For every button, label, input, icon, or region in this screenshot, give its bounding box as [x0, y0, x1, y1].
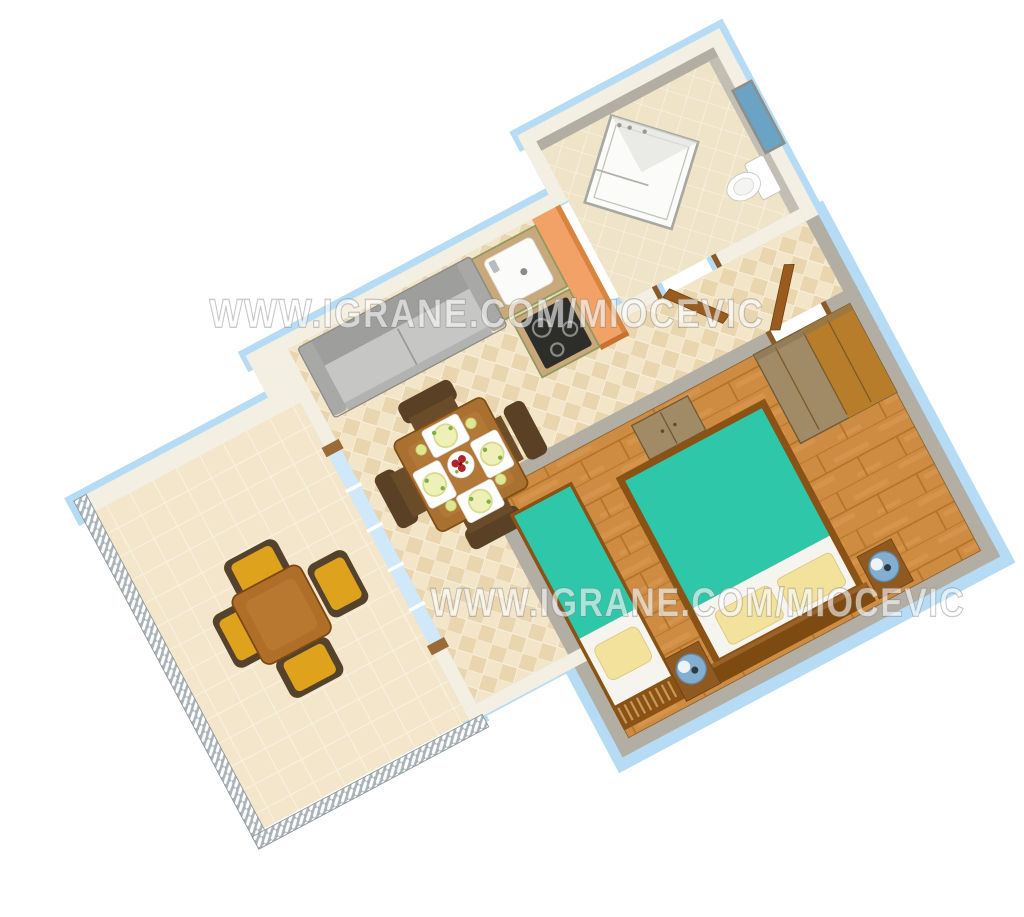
apartment-plan [10, 17, 1015, 917]
watermark-2: WWW.IGRANE.COM/MIOCEVIC [431, 581, 966, 625]
watermark-1: WWW.IGRANE.COM/MIOCEVIC [210, 292, 765, 336]
apartment-floor-plan: WWW.IGRANE.COM/MIOCEVIC WWW.IGRANE.COM/M… [0, 0, 1024, 917]
floor-plan-image: WWW.IGRANE.COM/MIOCEVIC WWW.IGRANE.COM/M… [0, 0, 1024, 917]
